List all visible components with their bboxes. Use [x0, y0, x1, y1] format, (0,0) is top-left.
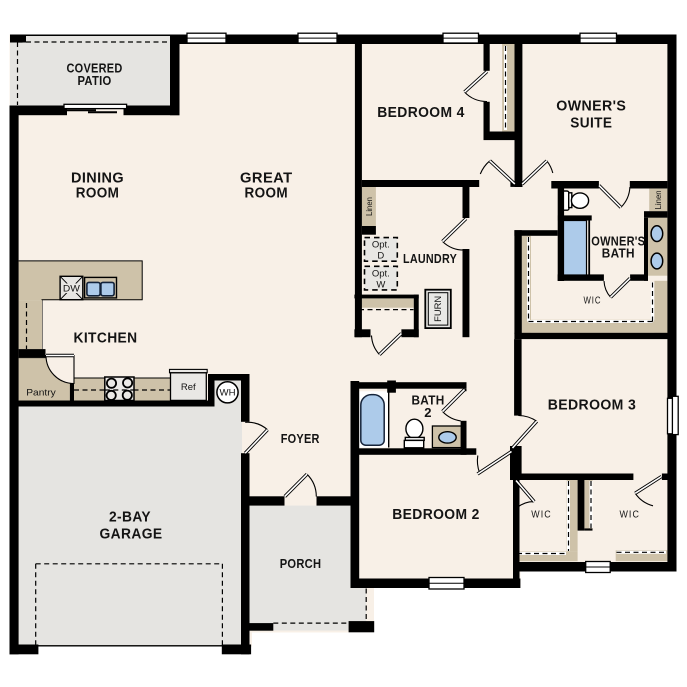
svg-text:PATIO: PATIO	[78, 73, 112, 88]
svg-text:WIC: WIC	[531, 510, 552, 521]
svg-text:GARAGE: GARAGE	[100, 527, 163, 543]
svg-text:W: W	[376, 280, 385, 291]
svg-text:D: D	[377, 251, 384, 262]
svg-text:Linen: Linen	[653, 190, 663, 209]
svg-text:Opt.: Opt.	[372, 269, 390, 280]
svg-text:OWNER'S: OWNER'S	[556, 98, 626, 114]
svg-text:2: 2	[424, 405, 432, 420]
svg-text:Pantry: Pantry	[26, 388, 56, 399]
svg-text:GREAT: GREAT	[240, 170, 293, 186]
svg-text:DW: DW	[63, 284, 80, 295]
svg-text:BEDROOM 4: BEDROOM 4	[377, 105, 465, 121]
svg-text:Opt.: Opt.	[372, 240, 390, 251]
svg-text:2-BAY: 2-BAY	[109, 510, 151, 526]
svg-text:FURN: FURN	[433, 296, 444, 322]
svg-text:PORCH: PORCH	[280, 556, 322, 571]
svg-text:Linen: Linen	[364, 197, 374, 216]
svg-text:Ref: Ref	[181, 382, 196, 393]
svg-text:BEDROOM 2: BEDROOM 2	[392, 507, 480, 523]
svg-text:BATH: BATH	[602, 245, 635, 260]
svg-text:DINING: DINING	[71, 170, 124, 186]
svg-text:ROOM: ROOM	[245, 185, 289, 201]
svg-text:ROOM: ROOM	[76, 185, 120, 201]
svg-text:BEDROOM 3: BEDROOM 3	[548, 398, 637, 414]
svg-text:FOYER: FOYER	[281, 431, 320, 446]
svg-text:SUITE: SUITE	[570, 115, 612, 131]
svg-text:KITCHEN: KITCHEN	[74, 331, 138, 347]
svg-text:WIC: WIC	[619, 510, 640, 521]
svg-text:LAUNDRY: LAUNDRY	[403, 251, 457, 266]
svg-text:WH: WH	[220, 388, 236, 399]
svg-text:WIC: WIC	[584, 296, 602, 307]
